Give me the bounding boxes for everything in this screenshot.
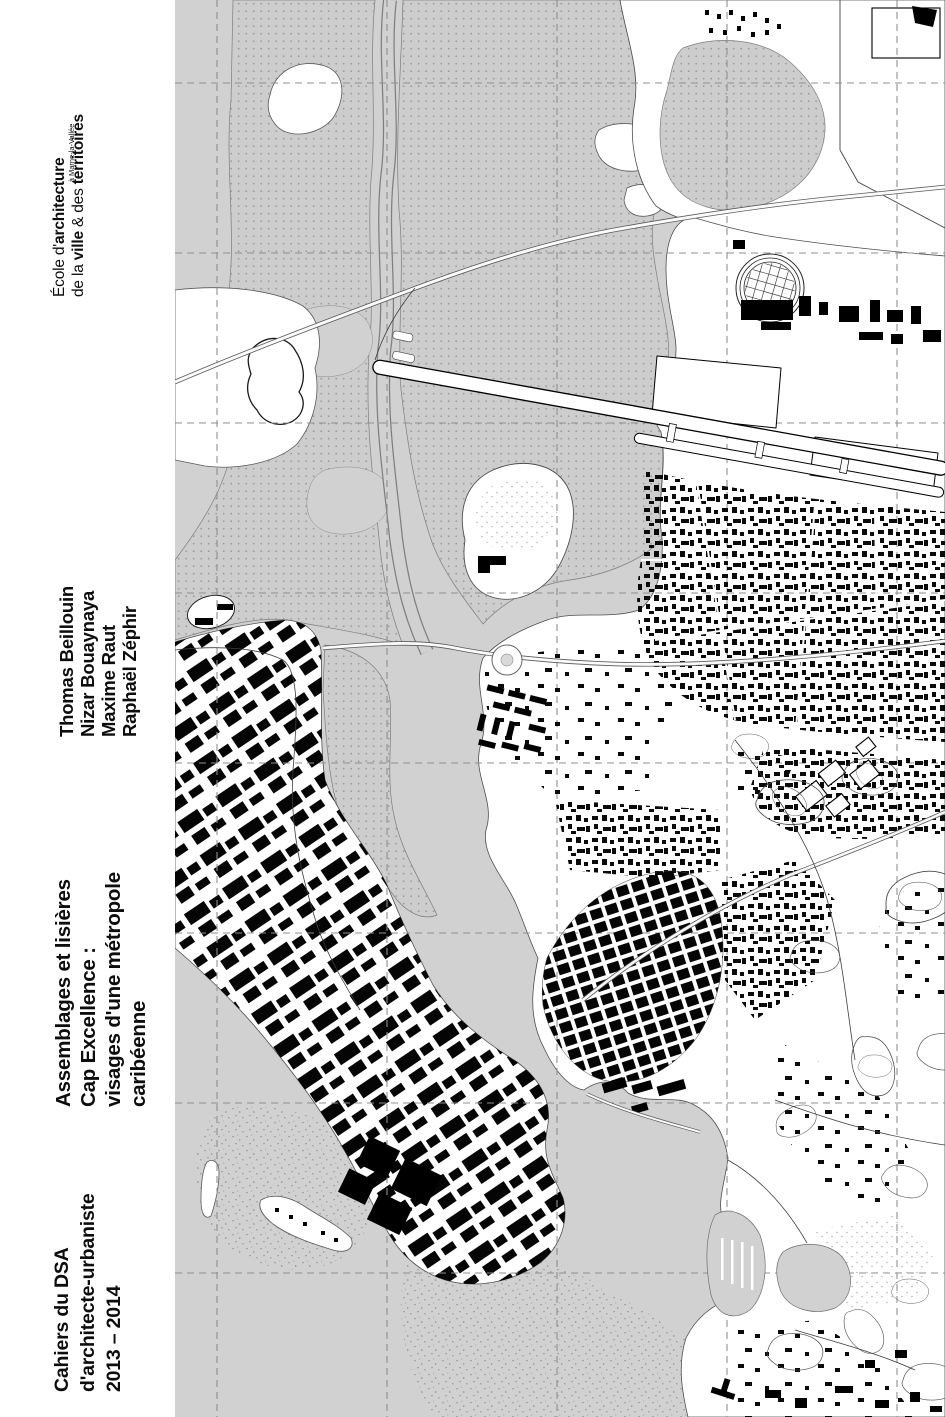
authors-block: Thomas Beillouin Nizar Bouaynaya Maxime …: [56, 586, 140, 737]
city-map-panel: [175, 0, 945, 1417]
title-block: Assemblages et lisières Cap Excellence :…: [51, 872, 151, 1107]
author-name: Thomas Beillouin: [56, 586, 77, 737]
title-line: caribéenne: [126, 872, 151, 1107]
series-line: d'architecte-urbaniste: [75, 1193, 101, 1392]
school-line2-regular: de la: [70, 260, 87, 297]
title-line: visages d'une métropole: [101, 872, 126, 1107]
school-line2-amp: & des: [70, 184, 87, 231]
series-block: Cahiers du DSA d'architecte-urbaniste 20…: [49, 1193, 127, 1392]
book-cover: École d'architecture de la ville & des t…: [0, 0, 945, 1417]
school-line2-bold-ville: ville: [70, 231, 87, 260]
title-line: Assemblages et lisières: [51, 872, 76, 1107]
school-line2-bold-territoires: territoiresà Marne-la-Vallée: [70, 114, 87, 184]
school-imprint: École d'architecture de la ville & des t…: [50, 114, 88, 297]
series-line: 2013 – 2014: [101, 1193, 127, 1392]
title-line: Cap Excellence :: [76, 872, 101, 1107]
school-location-small: à Marne-la-Vallée: [62, 124, 81, 183]
school-line1-regular: École d': [51, 244, 68, 297]
series-line: Cahiers du DSA: [49, 1193, 75, 1392]
school-line-2: de la ville & des territoiresà Marne-la-…: [69, 114, 88, 297]
author-name: Maxime Raut: [98, 586, 119, 737]
city-map: [175, 0, 945, 1417]
author-name: Nizar Bouaynaya: [77, 586, 98, 737]
author-name: Raphaël Zéphir: [119, 586, 140, 737]
roundabout-center: [501, 654, 513, 666]
